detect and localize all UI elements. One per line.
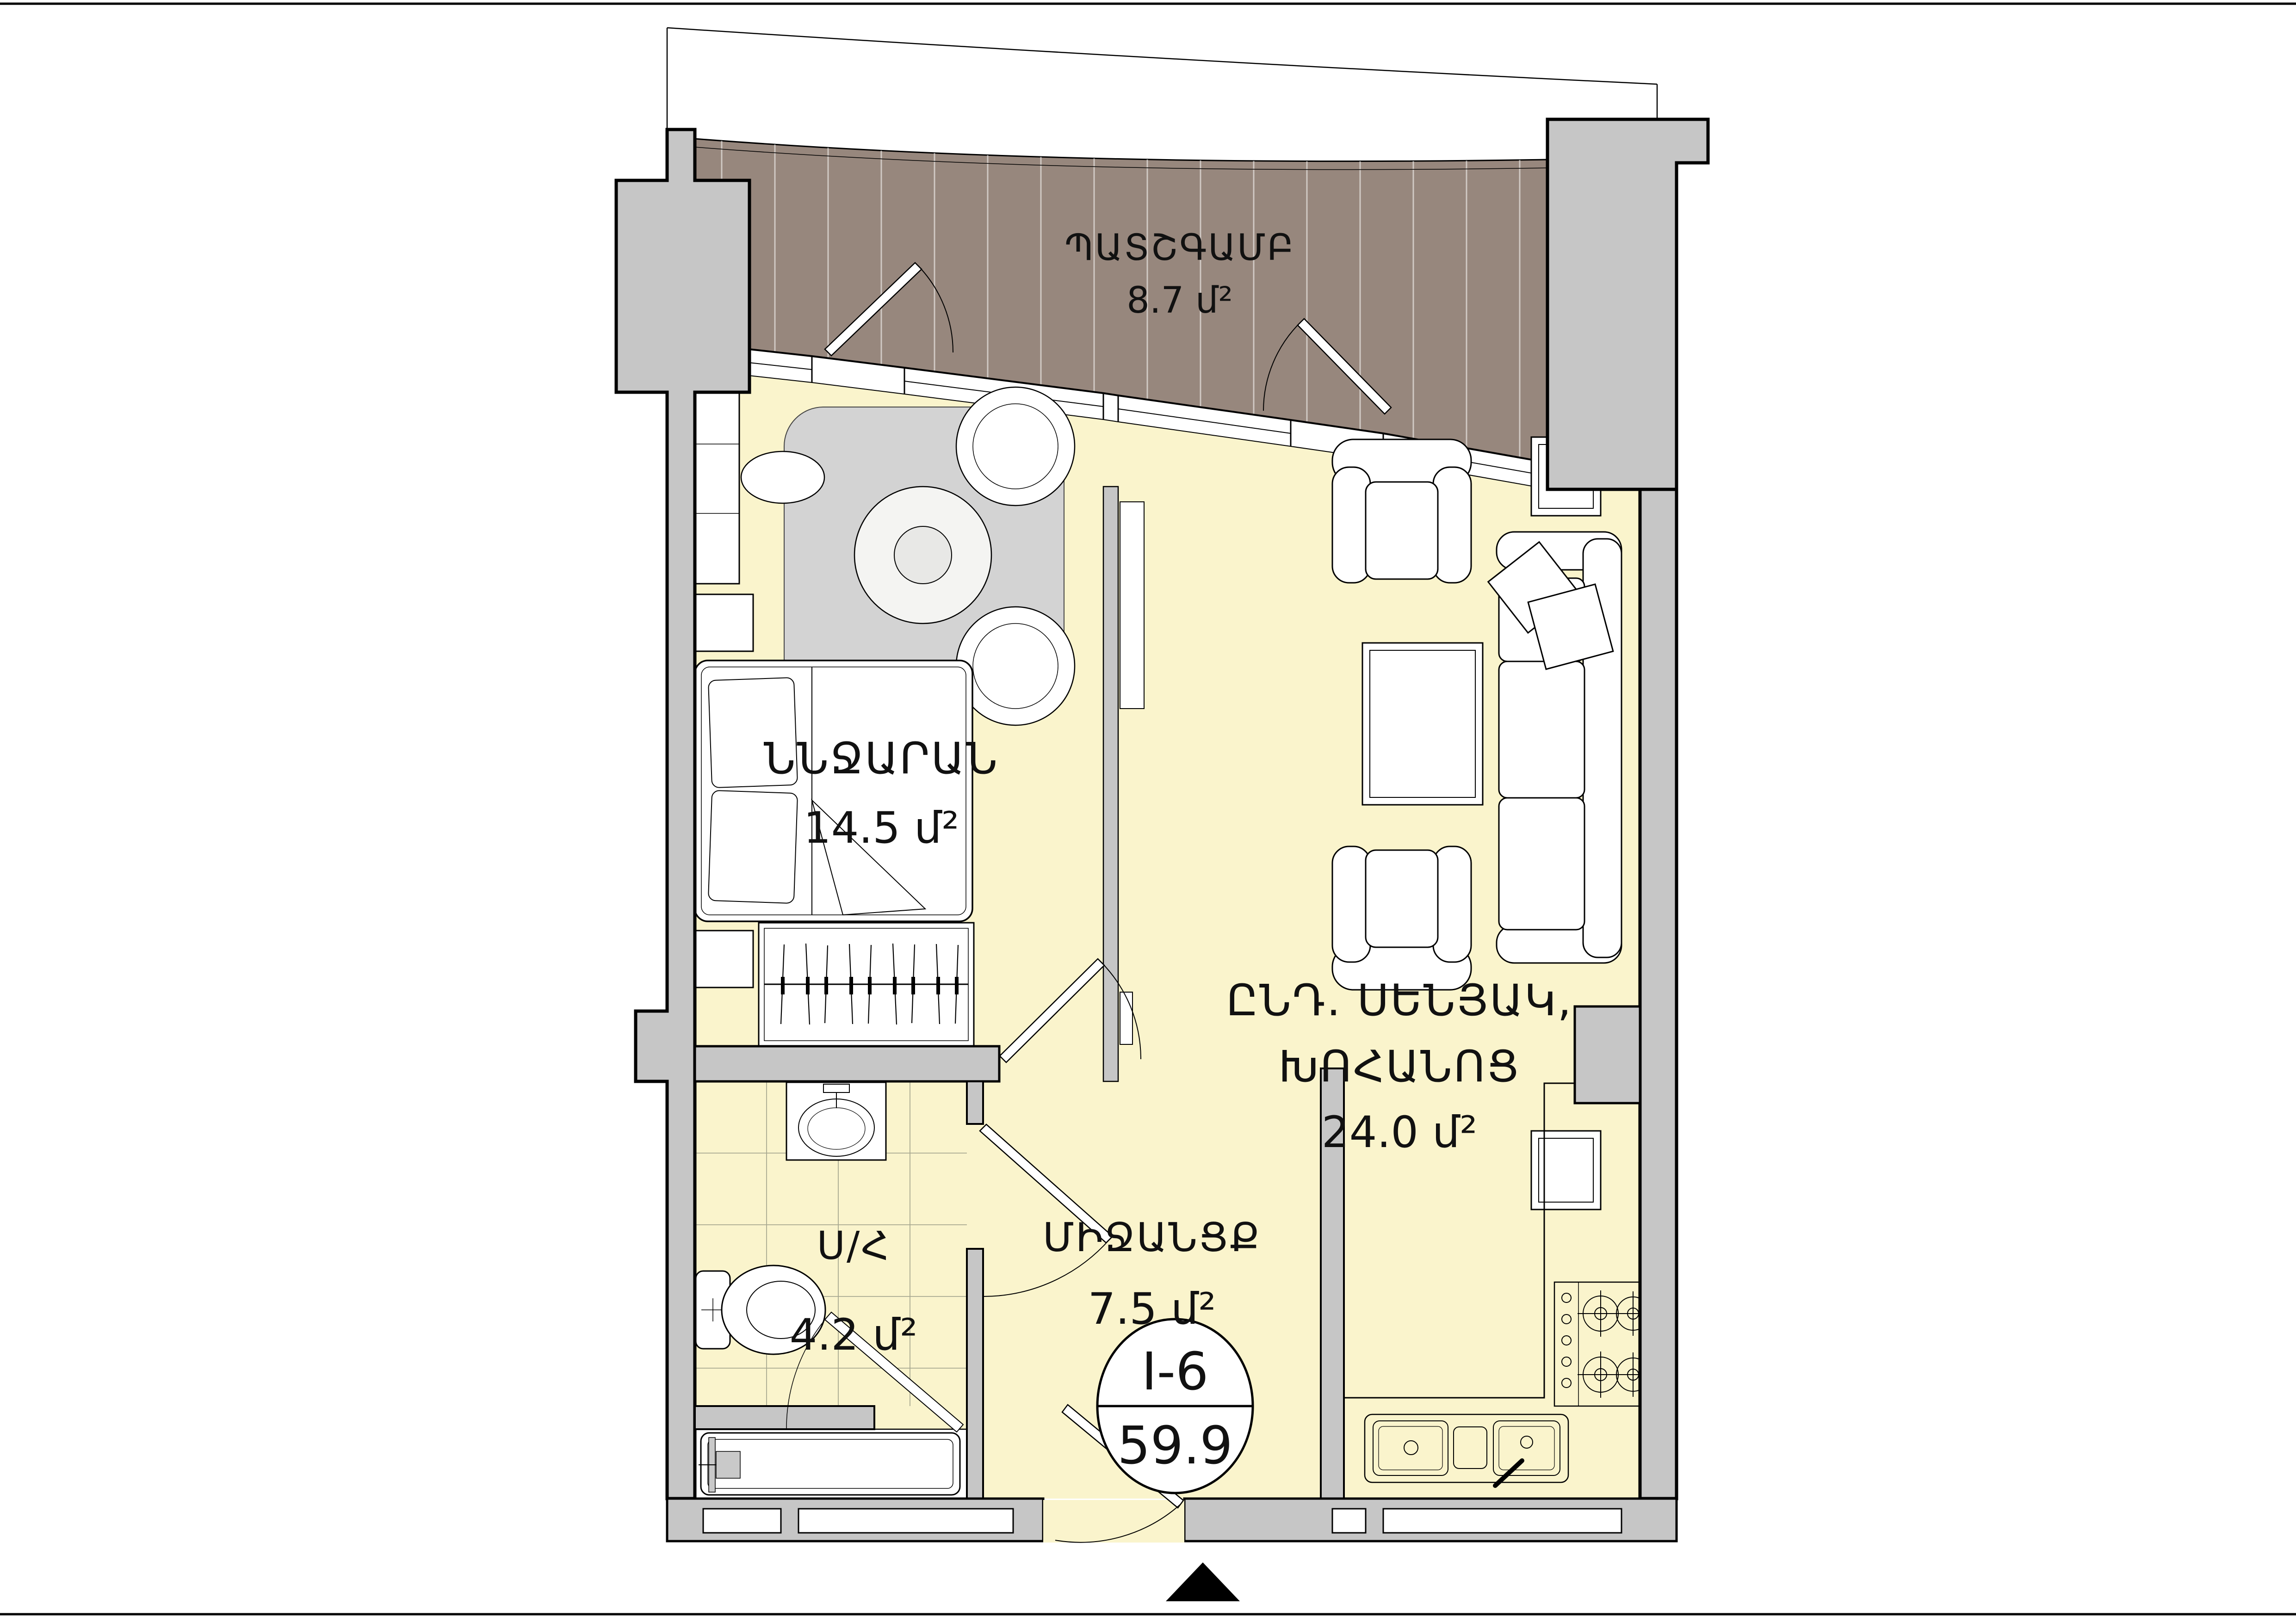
bedroom-nightstand <box>695 931 753 987</box>
right-wall-pilaster <box>1575 1006 1640 1103</box>
hallway-label: ՄԻՋԱՆՑՔ <box>1043 1215 1261 1261</box>
hallway-area: 7.5 մ² <box>1088 1284 1216 1334</box>
unit-total-area: 59.9 <box>1117 1416 1232 1476</box>
bathtub-room <box>695 1429 967 1499</box>
bedroom-nightstand <box>695 594 753 651</box>
living-armchair <box>1332 846 1471 990</box>
bedroom-label: ՆՆՋԱՐԱՆ <box>764 734 999 784</box>
balcony-area: 8.7 մ² <box>1126 280 1233 321</box>
living-sofa <box>1488 532 1621 963</box>
living-armchair <box>1332 439 1471 583</box>
north-arrow-icon <box>1166 1562 1240 1601</box>
bed-pillow <box>708 790 798 903</box>
sink-faucet <box>823 1084 849 1092</box>
entrance-opening <box>1043 1500 1184 1543</box>
bedroom-bed <box>695 660 972 921</box>
bedroom-closet <box>759 923 974 1046</box>
bedroom-living-partition <box>1103 487 1118 1081</box>
right-wall <box>1640 489 1677 1499</box>
unit-id: I-6 <box>1142 1342 1209 1402</box>
bedroom-tub-chair <box>956 607 1075 725</box>
living-coffee-table <box>1362 643 1483 805</box>
bedroom-table <box>854 487 991 623</box>
bathroom-wall-stub <box>967 1081 983 1124</box>
balcony-railing <box>667 28 1657 130</box>
bathroom-area: 4.2 մ² <box>790 1310 918 1360</box>
bathroom-sink <box>786 1082 886 1160</box>
bathroom-hall-wall <box>967 1249 983 1499</box>
living-area: 24.0 մ² <box>1322 1107 1477 1158</box>
floor-plan-drawing: I-6 59.9 ՊԱՏՇԳԱՄԲ 8.7 մ² ՆՆՋԱՐԱՆ 14.5 մ²… <box>0 0 2296 1623</box>
bedroom-area: 14.5 մ² <box>804 803 959 853</box>
living-side-table <box>1531 1131 1601 1210</box>
dresser-stool <box>741 451 824 503</box>
bathroom-label: Ս/Հ <box>817 1223 891 1268</box>
living-label-line1: ԸՆԴ. ՍԵՆՅԱԿ, <box>1226 975 1572 1026</box>
unit-badge: I-6 59.9 <box>1097 1319 1253 1493</box>
balcony-label: ՊԱՏՇԳԱՄԲ <box>1064 227 1295 269</box>
floor-plan-page: I-6 59.9 ՊԱՏՇԳԱՄԲ 8.7 մ² ՆՆՋԱՐԱՆ 14.5 մ²… <box>0 0 2296 1623</box>
living-label-line2: ԽՈՀԱՆՈՑ <box>1279 1042 1521 1092</box>
top-right-wall-block <box>1547 119 1708 489</box>
bathtub-room-wall <box>695 1406 874 1429</box>
bedroom-bathroom-wall <box>695 1046 999 1081</box>
bedroom-tub-chair <box>956 387 1075 506</box>
